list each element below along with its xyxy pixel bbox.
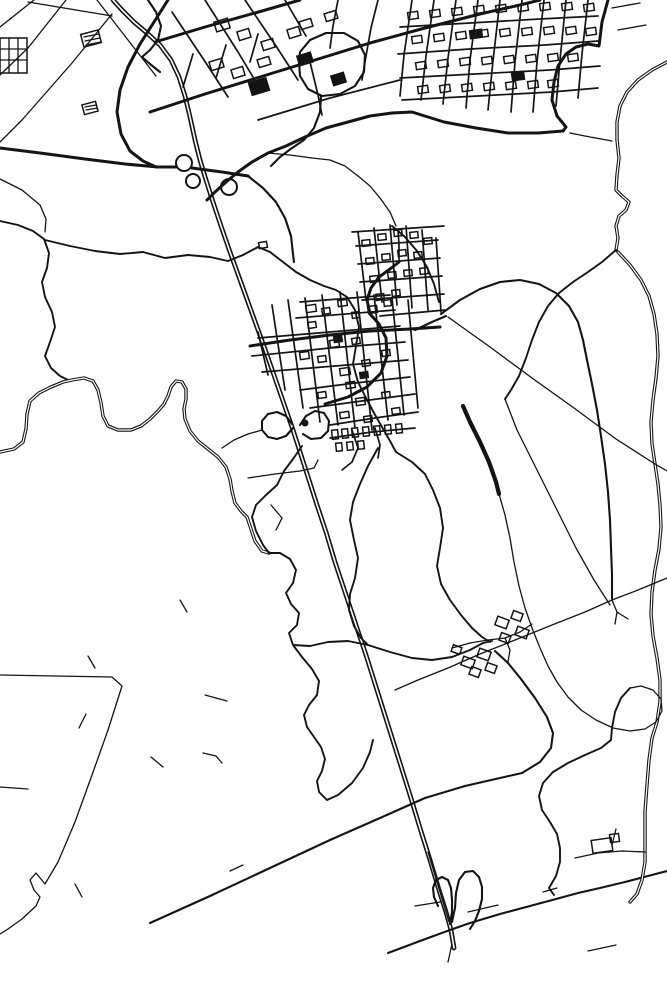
interchange-dot	[303, 421, 308, 426]
building-footprint	[334, 335, 343, 342]
street-map-drawing	[0, 0, 667, 1000]
road-line	[398, 230, 399, 262]
map-background	[0, 0, 667, 1000]
building-footprint	[360, 371, 369, 378]
map-canvas	[0, 0, 667, 1000]
building-footprint	[512, 71, 525, 81]
map-viewport	[0, 0, 667, 1000]
